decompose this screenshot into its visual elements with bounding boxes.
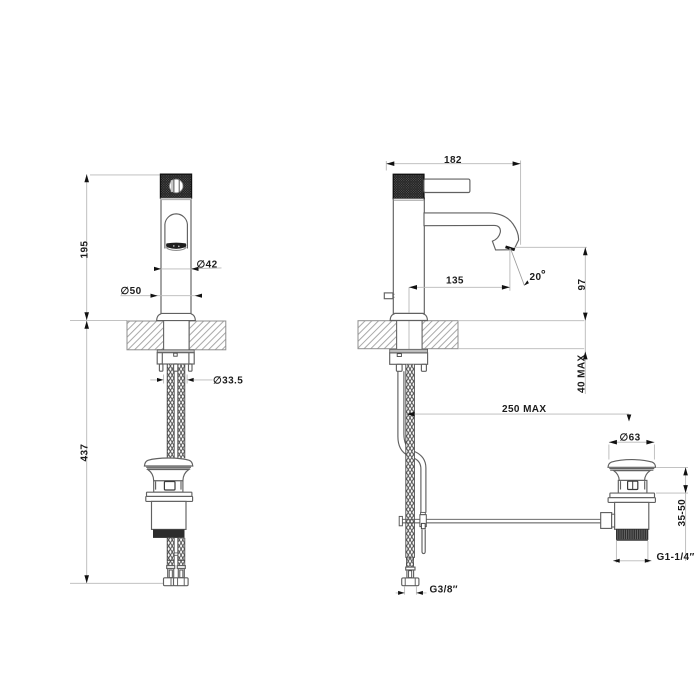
svg-text:G3/8″: G3/8″ bbox=[430, 584, 458, 595]
svg-text:G1-1/4″: G1-1/4″ bbox=[657, 552, 695, 563]
svg-text:∅42: ∅42 bbox=[197, 259, 218, 270]
svg-text:35-50: 35-50 bbox=[677, 499, 688, 527]
svg-text:∅50: ∅50 bbox=[121, 286, 142, 297]
svg-text:40 MAX: 40 MAX bbox=[577, 354, 588, 393]
svg-text:∅33.5: ∅33.5 bbox=[213, 376, 243, 387]
svg-text:182: 182 bbox=[444, 155, 462, 166]
svg-text:97: 97 bbox=[577, 279, 588, 291]
svg-text:135: 135 bbox=[446, 275, 464, 286]
svg-text:437: 437 bbox=[80, 444, 91, 462]
svg-text:195: 195 bbox=[80, 241, 91, 259]
svg-text:250 MAX: 250 MAX bbox=[502, 404, 547, 415]
svg-text:20: 20 bbox=[530, 272, 542, 283]
svg-text:∅63: ∅63 bbox=[620, 433, 641, 444]
